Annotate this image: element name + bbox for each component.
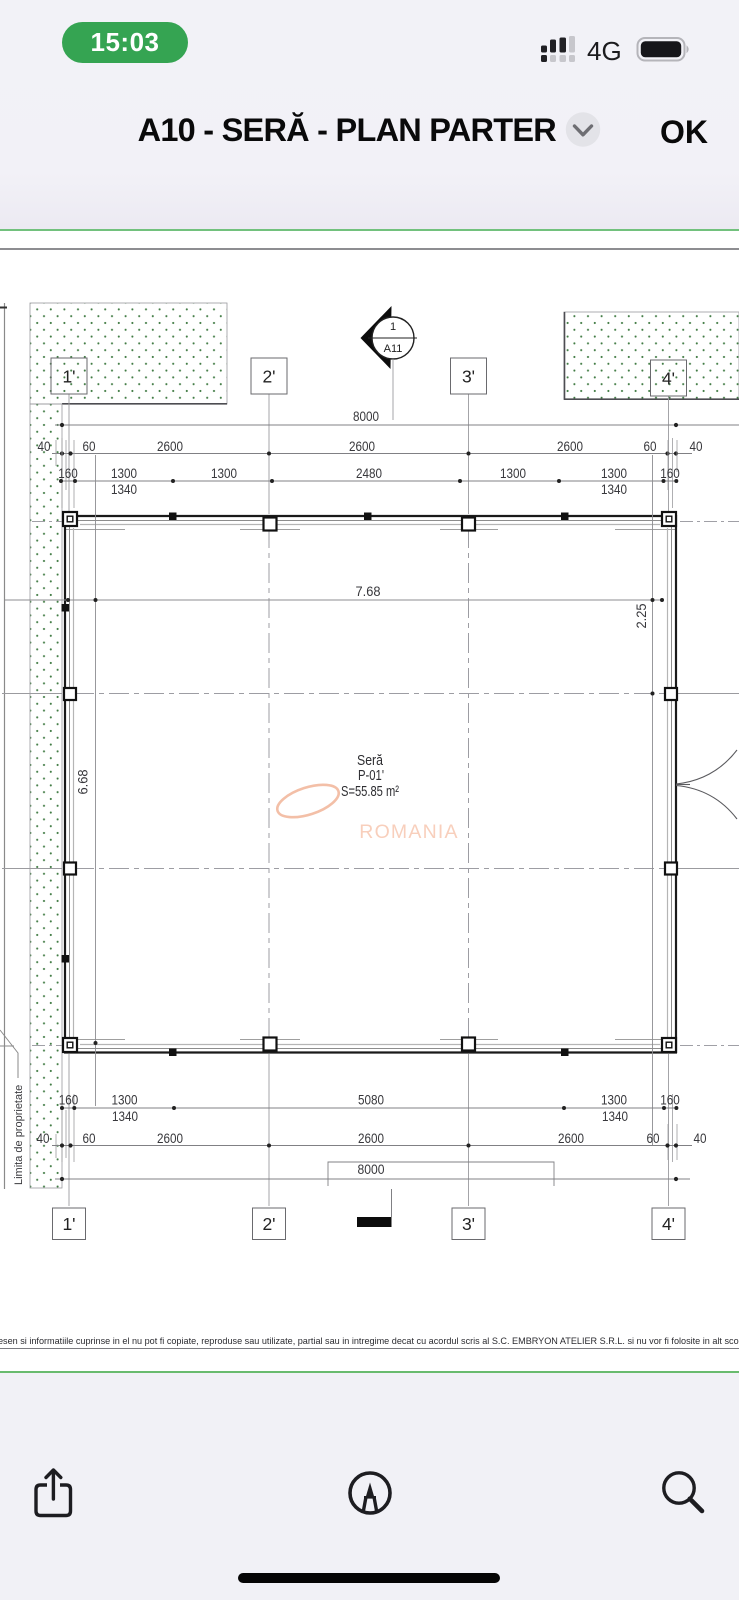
svg-text:2600: 2600 bbox=[349, 438, 375, 454]
svg-text:160: 160 bbox=[660, 465, 680, 481]
svg-text:2600: 2600 bbox=[558, 1130, 584, 1146]
svg-text:2600: 2600 bbox=[557, 438, 583, 454]
svg-text:A11: A11 bbox=[384, 343, 403, 355]
svg-text:40: 40 bbox=[694, 1130, 707, 1146]
svg-text:2.25: 2.25 bbox=[633, 603, 649, 628]
svg-text:40: 40 bbox=[37, 1130, 50, 1146]
svg-text:5080: 5080 bbox=[358, 1092, 384, 1108]
svg-text:2': 2' bbox=[262, 367, 275, 387]
svg-text:Limita de proprietate: Limita de proprietate bbox=[13, 1085, 25, 1185]
svg-text:4': 4' bbox=[662, 1214, 675, 1234]
svg-text:1': 1' bbox=[62, 1214, 75, 1234]
svg-text:3': 3' bbox=[462, 1214, 475, 1234]
svg-text:3': 3' bbox=[462, 367, 475, 387]
svg-text:6.68: 6.68 bbox=[75, 769, 91, 794]
svg-text:7.68: 7.68 bbox=[356, 583, 381, 599]
svg-text:2600: 2600 bbox=[358, 1130, 384, 1146]
svg-text:4': 4' bbox=[662, 369, 675, 389]
svg-text:160: 160 bbox=[59, 1092, 79, 1108]
svg-text:40: 40 bbox=[690, 438, 703, 454]
svg-text:1: 1 bbox=[390, 321, 396, 333]
svg-text:1300: 1300 bbox=[111, 465, 137, 481]
svg-text:1': 1' bbox=[62, 367, 75, 387]
svg-text:60: 60 bbox=[83, 1130, 96, 1146]
svg-text:P-01': P-01' bbox=[358, 768, 384, 784]
svg-text:1340: 1340 bbox=[602, 1108, 628, 1124]
svg-text:2600: 2600 bbox=[157, 1130, 183, 1146]
svg-text:1340: 1340 bbox=[112, 1108, 138, 1124]
svg-text:1340: 1340 bbox=[111, 481, 137, 497]
svg-text:8000: 8000 bbox=[353, 408, 379, 424]
svg-text:S=55.85 m²: S=55.85 m² bbox=[341, 783, 399, 800]
svg-text:1300: 1300 bbox=[601, 1092, 627, 1108]
svg-text:ROMANIA: ROMANIA bbox=[359, 821, 458, 843]
svg-text:2480: 2480 bbox=[356, 465, 382, 481]
svg-text:60: 60 bbox=[644, 438, 657, 454]
svg-text:2': 2' bbox=[262, 1214, 275, 1234]
svg-text:1300: 1300 bbox=[500, 465, 526, 481]
svg-text:1300: 1300 bbox=[601, 465, 627, 481]
svg-text:1300: 1300 bbox=[211, 465, 237, 481]
svg-text:160: 160 bbox=[660, 1092, 680, 1108]
svg-text:8000: 8000 bbox=[358, 1161, 385, 1177]
svg-text:160: 160 bbox=[58, 465, 78, 481]
svg-text:1300: 1300 bbox=[112, 1092, 138, 1108]
svg-text:Seră: Seră bbox=[357, 753, 384, 769]
svg-text:1340: 1340 bbox=[601, 481, 627, 497]
svg-text:2600: 2600 bbox=[157, 438, 183, 454]
svg-text:60: 60 bbox=[83, 438, 96, 454]
svg-text:40: 40 bbox=[38, 438, 51, 454]
svg-text:60: 60 bbox=[647, 1130, 660, 1146]
